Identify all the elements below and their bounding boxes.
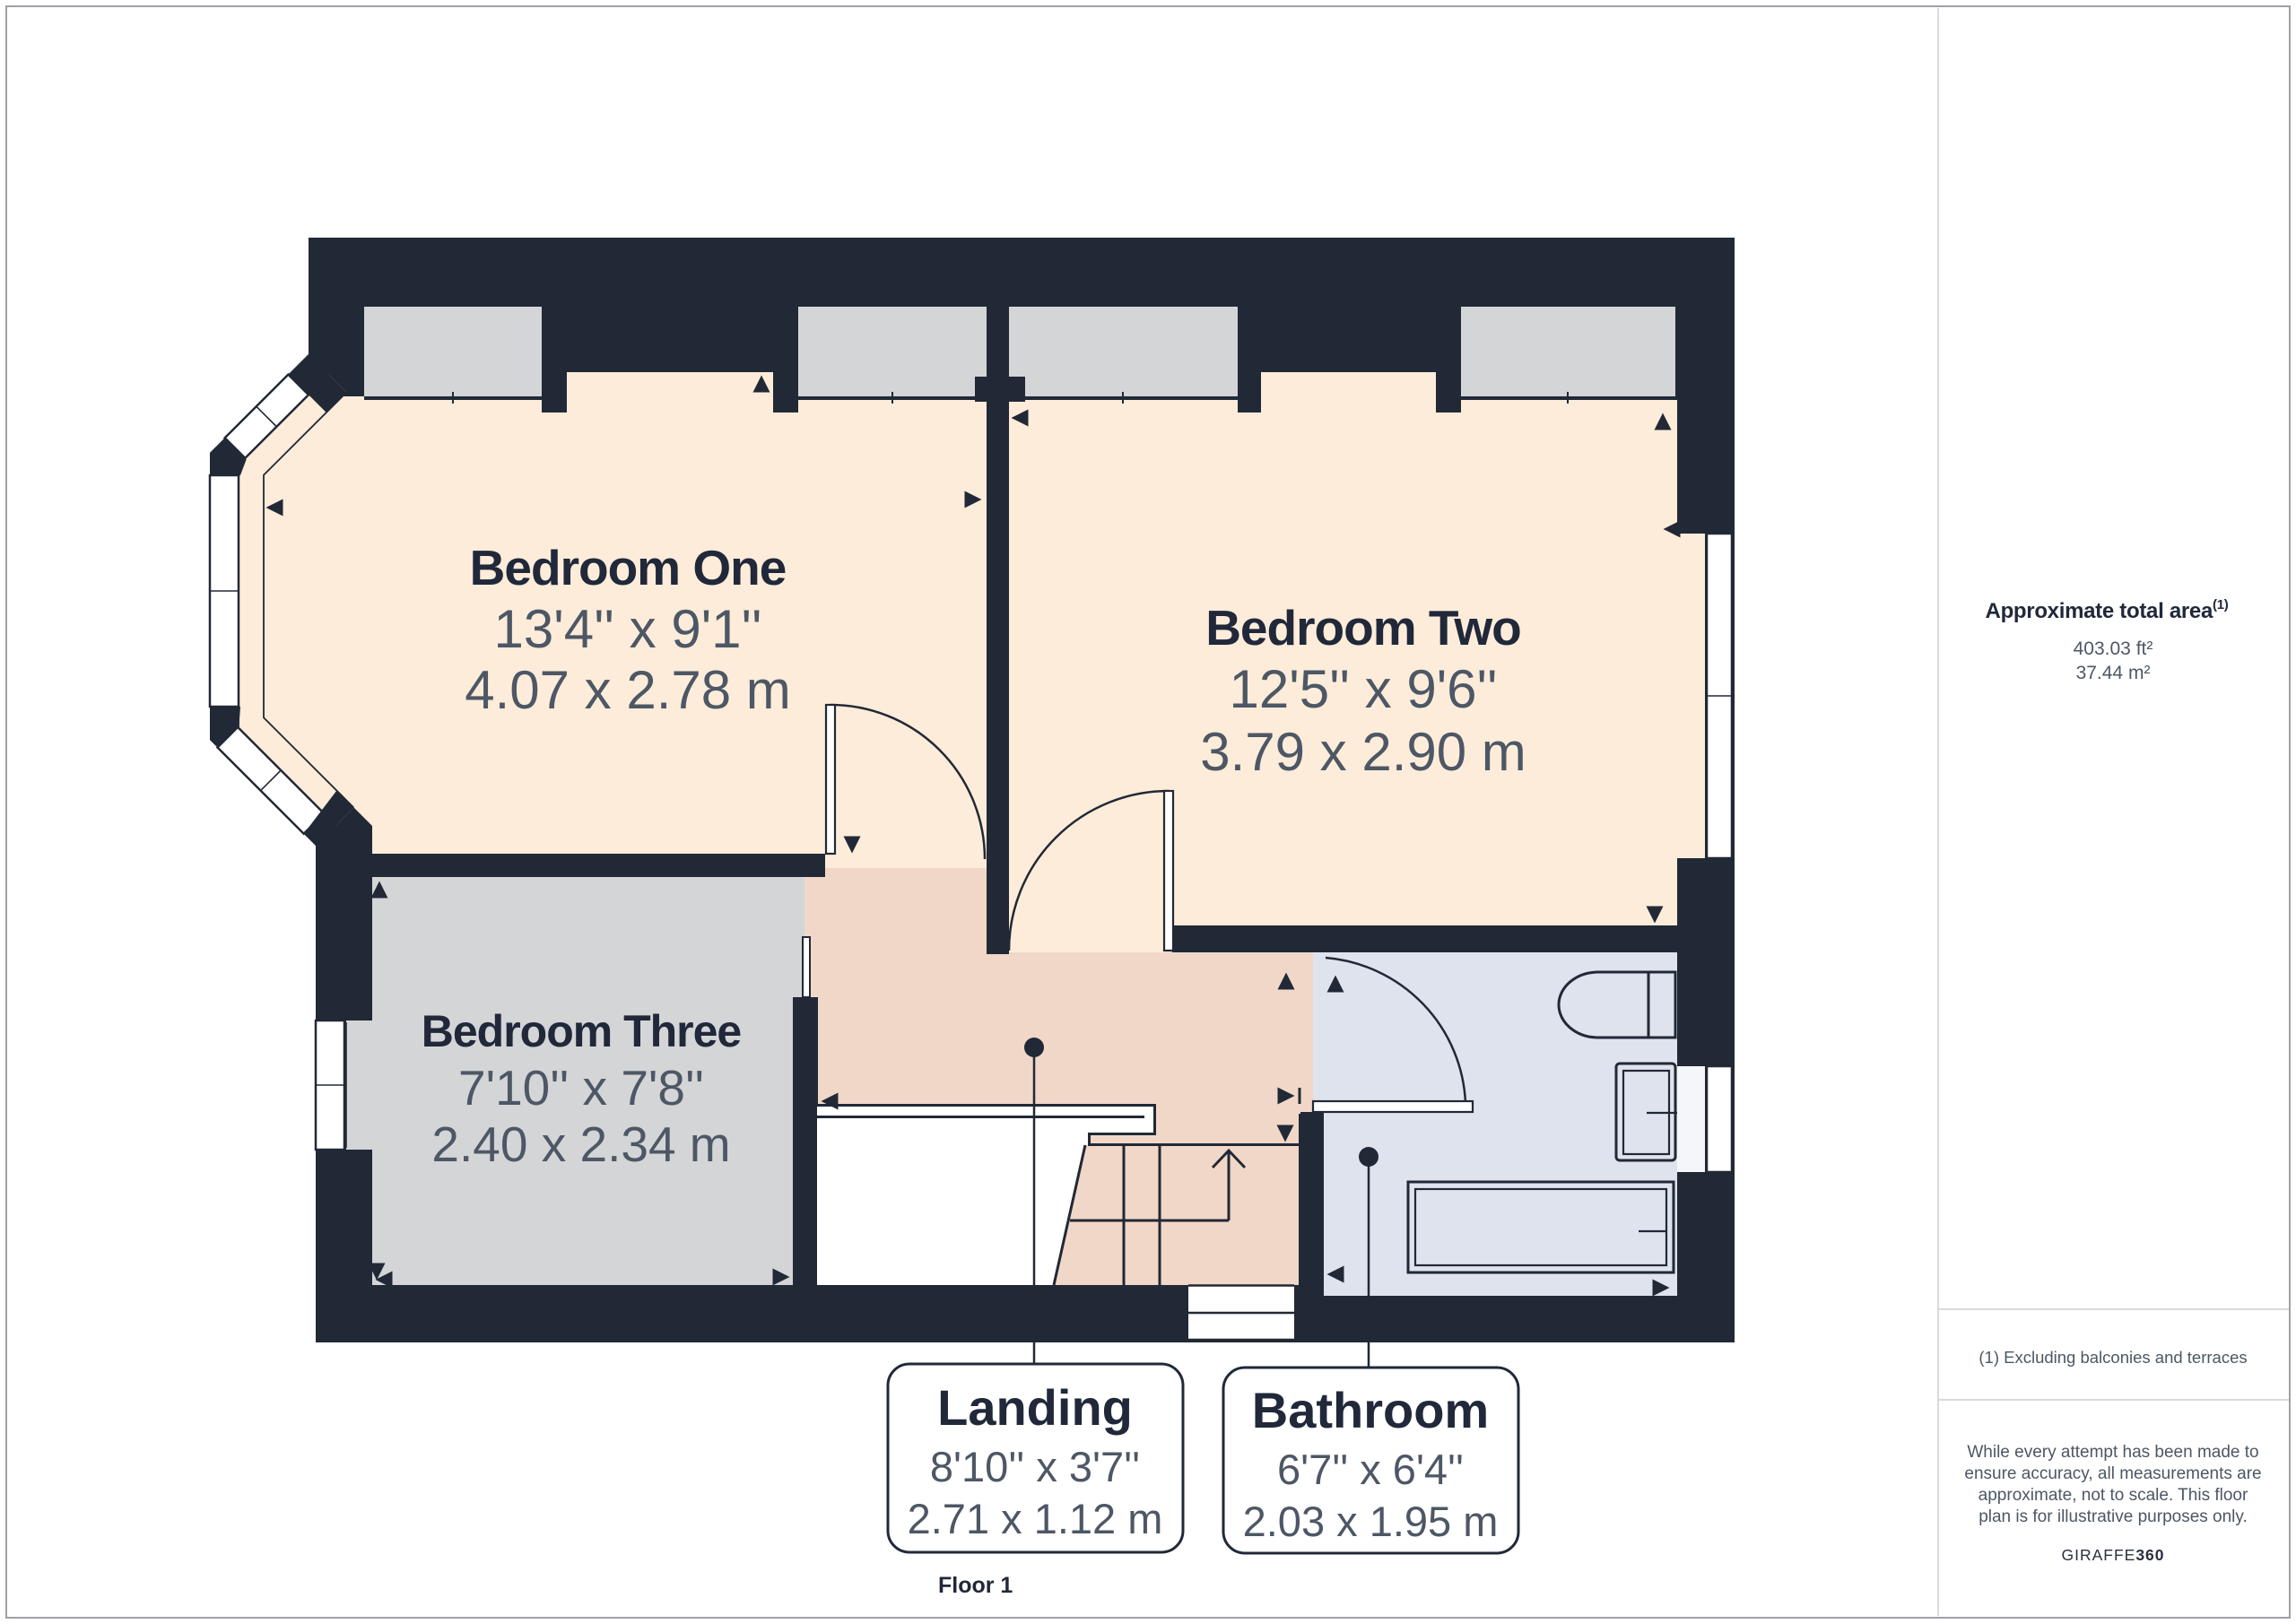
svg-text:7'10'' x 7'8'': 7'10'' x 7'8'' (458, 1060, 704, 1116)
svg-text:37.44 m²: 37.44 m² (2076, 663, 2151, 683)
svg-text:GIRAFFE360: GIRAFFE360 (2061, 1546, 2164, 1564)
svg-text:2.40 x 2.34 m: 2.40 x 2.34 m (431, 1116, 730, 1172)
svg-text:6'7'' x 6'4'': 6'7'' x 6'4'' (1277, 1446, 1464, 1493)
svg-text:approximate, not to scale. Thi: approximate, not to scale. This floor (1979, 1486, 2248, 1505)
svg-text:403.03 ft²: 403.03 ft² (2074, 638, 2153, 659)
svg-text:12'5'' x 9'6'': 12'5'' x 9'6'' (1230, 659, 1498, 719)
svg-text:Approximate total area(1): Approximate total area(1) (1986, 597, 2229, 623)
svg-text:Bedroom Two: Bedroom Two (1205, 600, 1521, 656)
svg-text:Bedroom One: Bedroom One (470, 540, 787, 595)
svg-text:Bedroom Three: Bedroom Three (422, 1006, 742, 1056)
svg-text:13'4'' x 9'1'': 13'4'' x 9'1'' (494, 599, 762, 659)
svg-text:Bathroom: Bathroom (1252, 1382, 1489, 1438)
svg-text:Landing: Landing (937, 1379, 1133, 1436)
svg-text:8'10'' x 3'7'': 8'10'' x 3'7'' (930, 1443, 1140, 1490)
svg-text:2.03 x 1.95 m: 2.03 x 1.95 m (1243, 1498, 1499, 1545)
svg-text:plan is for illustrative purpo: plan is for illustrative purposes only. (1979, 1507, 2248, 1526)
svg-text:3.79 x 2.90 m: 3.79 x 2.90 m (1200, 722, 1526, 782)
svg-text:ensure accuracy, all measureme: ensure accuracy, all measurements are (1964, 1464, 2261, 1483)
svg-text:(1) Excluding balconies and te: (1) Excluding balconies and terraces (1979, 1348, 2247, 1367)
svg-text:4.07 x 2.78 m: 4.07 x 2.78 m (465, 660, 791, 720)
svg-text:Floor 1: Floor 1 (938, 1573, 1013, 1598)
svg-text:2.71 x 1.12 m: 2.71 x 1.12 m (908, 1495, 1163, 1542)
svg-text:While every attempt has been m: While every attempt has been made to (1967, 1443, 2258, 1462)
